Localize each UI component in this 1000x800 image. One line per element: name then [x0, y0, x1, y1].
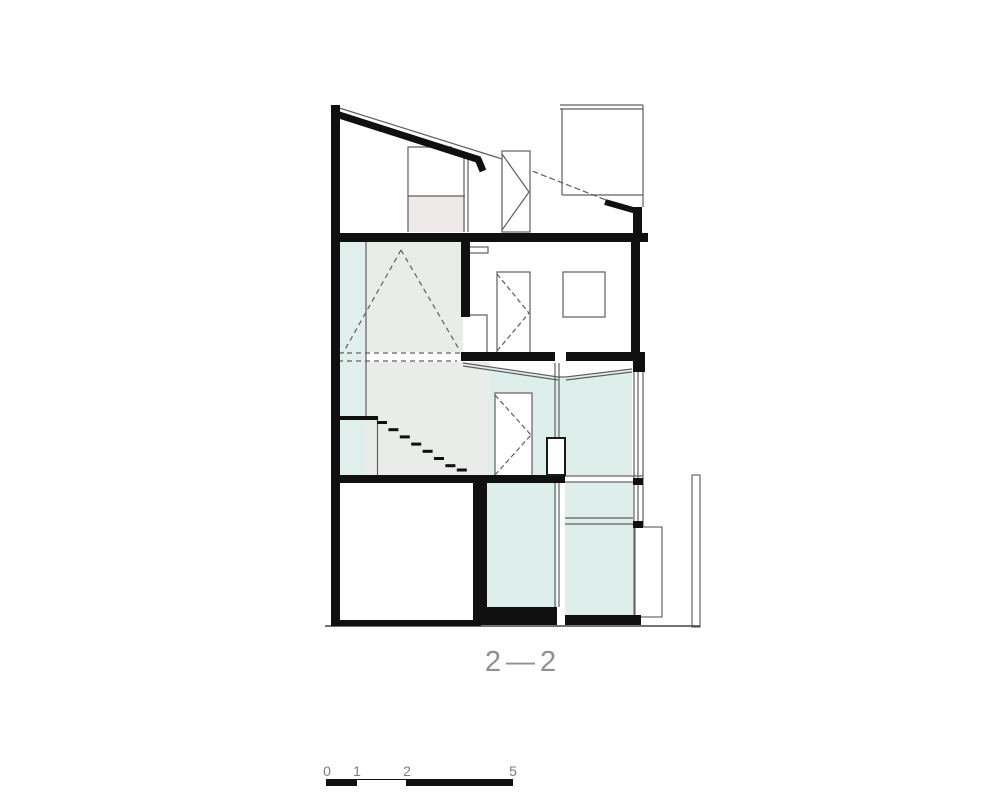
ground-floor-slab	[331, 475, 565, 483]
stair-landing-wall	[337, 416, 378, 420]
scale-bar-segment-2-5	[406, 780, 513, 786]
door-leaf-cut	[547, 438, 565, 475]
roof-cut	[336, 114, 640, 212]
stair-tread	[445, 464, 455, 467]
section-title: 2—2	[468, 646, 578, 679]
floor2-slab-end	[633, 361, 645, 372]
glass-panel-right	[565, 483, 633, 615]
floor2-window-panel	[497, 272, 530, 353]
stair-hall-lower-fill	[366, 362, 490, 475]
scale-label-5: 5	[505, 763, 521, 779]
upper-right-parapet	[560, 105, 643, 207]
right-fence-post	[692, 475, 700, 627]
stair-tread	[434, 457, 444, 460]
foundation-middle	[473, 607, 557, 625]
scale-label-1: 1	[349, 763, 365, 779]
frame-joint-upper	[633, 478, 643, 485]
stair-hall-upper-fill	[366, 242, 463, 352]
stair-tread	[411, 443, 421, 446]
section-drawing-canvas: 2—2 0 1 2 5	[0, 0, 1000, 800]
scale-label-0: 0	[319, 763, 335, 779]
open-door-panel	[635, 527, 662, 617]
left-wall-cut	[331, 105, 340, 626]
attic-window-panel	[502, 151, 530, 232]
floor2-stair-parapet	[463, 315, 487, 352]
attic-floor-slab	[331, 233, 648, 242]
right-slab-thin-lines	[565, 476, 643, 482]
stair-tread	[457, 469, 467, 472]
stair-tread	[423, 450, 433, 453]
frame-joint-lower	[633, 521, 643, 528]
glass-panel-middle	[487, 483, 557, 607]
roof-end-cap	[478, 159, 483, 171]
attic-closet-fill	[408, 196, 465, 232]
section-drawing	[0, 0, 1000, 800]
floor2-slab-right	[566, 352, 645, 361]
floor2-slab-left	[461, 352, 555, 361]
floor2-square-window	[563, 272, 605, 317]
stair-tread	[400, 435, 410, 438]
stair-tread	[388, 428, 398, 431]
roof-top-line	[333, 106, 499, 158]
stairwell-glass-strip	[338, 242, 366, 475]
floor2-divider-wall	[461, 242, 470, 317]
stair-tread	[377, 421, 387, 424]
ground-middle-wall	[473, 481, 487, 622]
scale-bar-segment-0-1	[326, 780, 357, 786]
foundation-left	[331, 620, 481, 626]
floor2-right-wall-cut	[631, 241, 640, 361]
foundation-right	[565, 615, 641, 625]
scale-label-2: 2	[399, 763, 415, 779]
floor1-window-panel	[495, 393, 532, 476]
